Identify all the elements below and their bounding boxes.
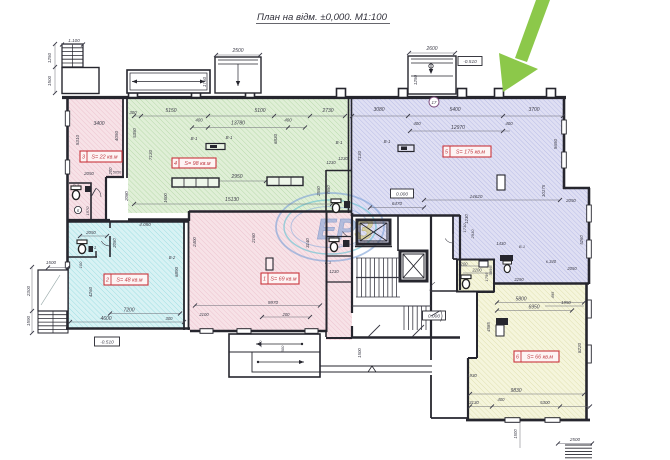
svg-text:-0.510: -0.510 — [463, 59, 477, 65]
svg-text:400: 400 — [498, 397, 506, 402]
svg-text:В-2: В-2 — [169, 255, 176, 260]
svg-text:1710: 1710 — [462, 223, 467, 233]
svg-text:к.340: к.340 — [546, 259, 557, 264]
svg-text:S= 98 кв.м: S= 98 кв.м — [184, 161, 211, 167]
svg-text:1230: 1230 — [326, 160, 336, 165]
svg-text:2050: 2050 — [83, 171, 94, 176]
svg-text:2050: 2050 — [566, 266, 577, 271]
svg-text:5260: 5260 — [579, 235, 584, 245]
svg-text:2: 2 — [105, 278, 109, 284]
svg-text:3140: 3140 — [305, 238, 310, 248]
svg-text:100: 100 — [78, 261, 83, 268]
svg-text:3700: 3700 — [528, 107, 539, 113]
svg-text:1750: 1750 — [202, 76, 207, 87]
svg-text:8220: 8220 — [577, 342, 582, 353]
svg-text:13780: 13780 — [231, 121, 245, 127]
svg-text:2050: 2050 — [565, 198, 576, 203]
svg-text:В-1: В-1 — [325, 260, 331, 265]
svg-text:0.000: 0.000 — [396, 192, 408, 198]
svg-text:1430: 1430 — [496, 241, 506, 246]
svg-text:14620: 14620 — [470, 194, 483, 199]
svg-text:2080: 2080 — [124, 191, 129, 202]
svg-text:S= 69 кв.м: S= 69 кв.м — [270, 277, 297, 283]
svg-text:10175: 10175 — [541, 184, 546, 197]
svg-text:7130: 7130 — [357, 150, 362, 161]
svg-text:9830: 9830 — [510, 388, 521, 394]
svg-text:S= 175 кв.м: S= 175 кв.м — [456, 150, 486, 156]
svg-text:2100: 2100 — [198, 312, 209, 317]
svg-text:4600: 4600 — [100, 316, 111, 322]
svg-text:2500: 2500 — [231, 48, 243, 54]
svg-text:5100: 5100 — [254, 108, 265, 114]
svg-text:2400: 2400 — [192, 237, 197, 248]
svg-text:4260: 4260 — [88, 286, 93, 297]
svg-text:1500: 1500 — [513, 429, 518, 439]
svg-text:2730: 2730 — [321, 108, 333, 114]
svg-text:1: 1 — [263, 277, 266, 283]
svg-text:3130: 3130 — [469, 400, 479, 405]
svg-text:2600: 2600 — [425, 46, 437, 52]
svg-text:5350: 5350 — [132, 128, 137, 138]
svg-text:2050: 2050 — [85, 230, 96, 235]
svg-text:2290: 2290 — [513, 277, 524, 282]
svg-text:9970: 9970 — [268, 300, 279, 305]
svg-text:План на відм. ±0,000. М1:100: План на відм. ±0,000. М1:100 — [257, 12, 388, 23]
svg-text:300: 300 — [280, 345, 285, 352]
svg-text:5050: 5050 — [113, 171, 122, 175]
svg-text:1950: 1950 — [561, 300, 571, 305]
svg-text:2950: 2950 — [230, 174, 242, 180]
svg-text:1250: 1250 — [413, 74, 418, 85]
svg-text:2910: 2910 — [470, 229, 475, 240]
svg-text:1250: 1250 — [47, 52, 52, 63]
svg-text:300: 300 — [129, 110, 137, 115]
svg-text:1500: 1500 — [46, 260, 57, 265]
svg-text:1500: 1500 — [357, 348, 362, 358]
svg-text:400: 400 — [258, 340, 263, 347]
svg-text:1230: 1230 — [464, 214, 469, 224]
svg-text:В-1: В-1 — [384, 139, 391, 144]
svg-text:3080: 3080 — [373, 107, 384, 113]
svg-text:6890: 6890 — [174, 266, 179, 277]
svg-text:3: 3 — [82, 155, 85, 161]
svg-text:2500: 2500 — [569, 437, 581, 442]
svg-text:1230: 1230 — [338, 156, 348, 161]
svg-text:12970: 12970 — [451, 125, 465, 131]
svg-text:400: 400 — [505, 121, 513, 126]
svg-text:-0.510: -0.510 — [100, 340, 114, 346]
svg-text:1795: 1795 — [484, 272, 489, 282]
svg-text:2160: 2160 — [251, 233, 256, 244]
svg-text:4: 4 — [174, 161, 177, 167]
svg-text:3400: 3400 — [93, 121, 104, 127]
svg-text:5150: 5150 — [165, 108, 176, 114]
svg-text:2300: 2300 — [26, 285, 31, 297]
svg-text:2550: 2550 — [316, 186, 321, 197]
svg-text:1230: 1230 — [329, 269, 339, 274]
svg-text:495: 495 — [550, 291, 555, 298]
svg-text:7200: 7200 — [123, 308, 134, 314]
svg-text:5650: 5650 — [553, 138, 558, 149]
svg-text:В-1: В-1 — [336, 140, 343, 145]
svg-text:15130: 15130 — [225, 197, 239, 203]
svg-text:6830: 6830 — [273, 133, 278, 144]
svg-text:5800: 5800 — [515, 297, 526, 303]
svg-text:400: 400 — [284, 118, 292, 123]
svg-text:400: 400 — [413, 121, 421, 126]
svg-text:5400: 5400 — [449, 107, 460, 113]
svg-text:1.100: 1.100 — [68, 38, 80, 43]
svg-text:В-1: В-1 — [191, 136, 198, 141]
svg-text:17: 17 — [432, 100, 437, 105]
svg-text:300: 300 — [166, 316, 174, 321]
svg-text:6: 6 — [516, 355, 519, 361]
svg-text:7550: 7550 — [326, 185, 331, 195]
svg-text:1570: 1570 — [85, 206, 90, 216]
svg-text:4050: 4050 — [114, 130, 119, 141]
svg-text:В-1: В-1 — [226, 135, 233, 140]
svg-text:2200: 2200 — [471, 268, 482, 273]
svg-text:400: 400 — [195, 118, 203, 123]
svg-text:200: 200 — [282, 312, 291, 317]
svg-text:1590: 1590 — [26, 315, 31, 326]
svg-text:6950: 6950 — [528, 305, 539, 311]
svg-text:1600: 1600 — [163, 193, 168, 203]
svg-text:6470: 6470 — [392, 201, 403, 206]
svg-text:В-1: В-1 — [519, 244, 525, 249]
svg-text:4.050: 4.050 — [139, 222, 151, 227]
svg-text:4585: 4585 — [486, 322, 491, 332]
svg-text:2050: 2050 — [112, 238, 117, 249]
svg-text:1500: 1500 — [47, 75, 52, 86]
svg-text:7130: 7130 — [148, 149, 153, 160]
svg-text:200: 200 — [460, 262, 469, 267]
svg-text:S= 22 кв.м: S= 22 кв.м — [91, 155, 118, 161]
svg-text:1930: 1930 — [467, 373, 477, 378]
svg-text:5310: 5310 — [75, 134, 80, 145]
svg-text:5300: 5300 — [540, 400, 550, 405]
svg-text:S= 66 кв.м: S= 66 кв.м — [527, 355, 554, 361]
svg-text:S= 48 кв.м: S= 48 кв.м — [116, 278, 143, 284]
